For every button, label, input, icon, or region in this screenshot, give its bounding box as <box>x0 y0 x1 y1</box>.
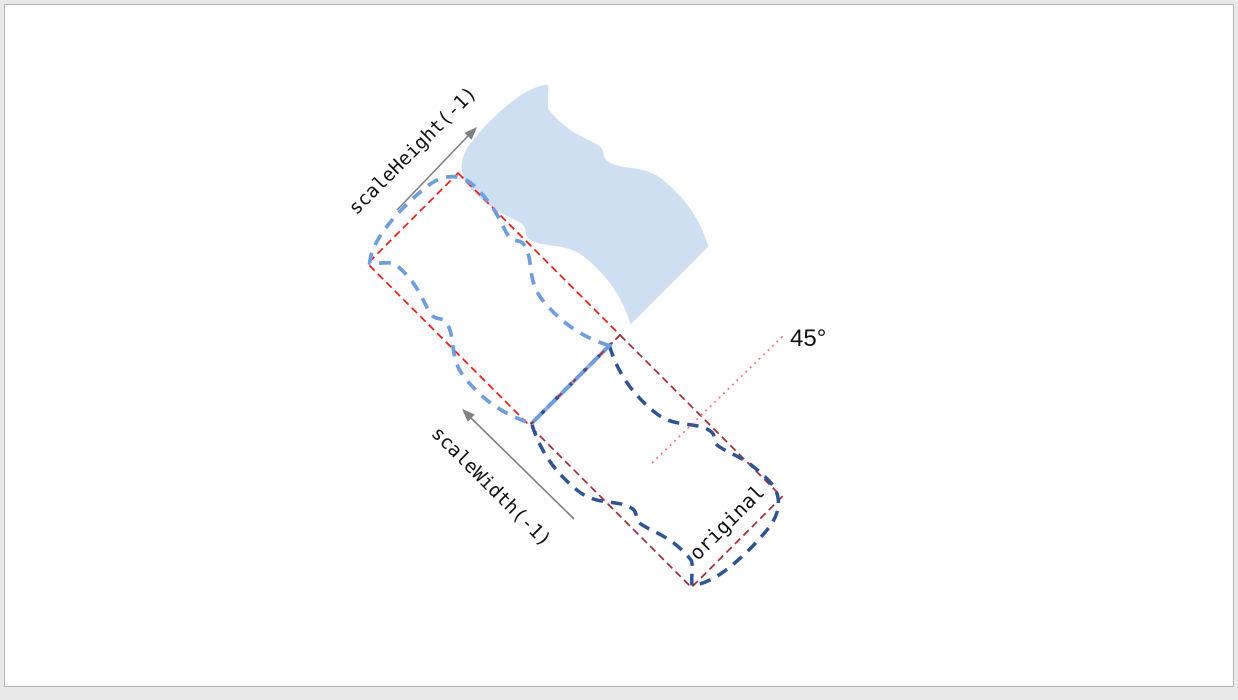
angle-label: 45° <box>790 325 826 352</box>
scalewidth-annotation: scaleWidth(-1) <box>427 409 574 551</box>
flag-original-outline <box>520 333 793 606</box>
angle-annotation: 45° <box>652 325 826 463</box>
diagram-svg: original 45° scaleHeight(-1) scaleWidth(… <box>0 0 1238 700</box>
original-bounding-box <box>529 335 781 587</box>
scalewidth-label: scaleWidth(-1) <box>427 422 556 551</box>
scaleheight-label: scaleHeight(-1) <box>344 82 481 219</box>
scaleheight-annotation: scaleHeight(-1) <box>344 82 481 219</box>
